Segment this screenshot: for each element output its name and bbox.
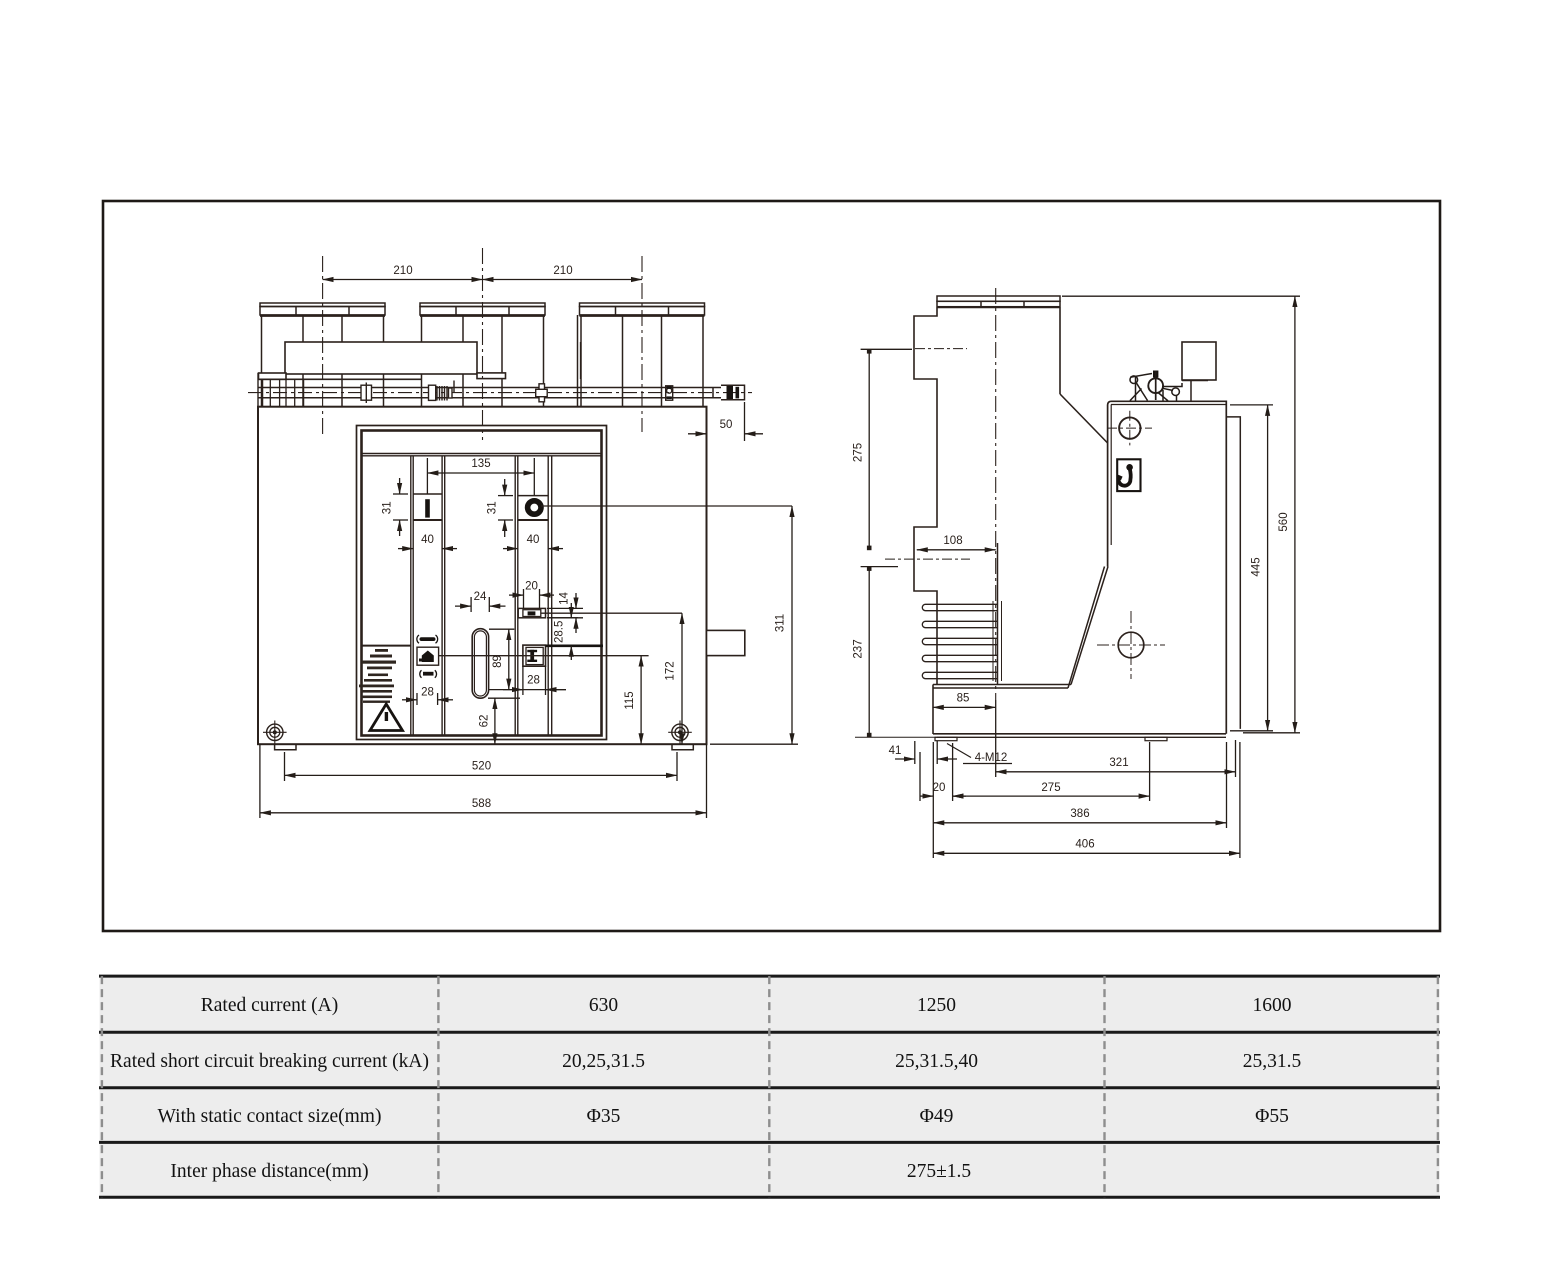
svg-text:31: 31 [487,501,499,514]
svg-text:Rated short circuit breaking c: Rated short circuit breaking current (kA… [110,1051,429,1072]
svg-text:406: 406 [1075,839,1094,851]
svg-text:237: 237 [853,639,865,658]
svg-text:Rated current (A): Rated current (A) [201,995,339,1016]
svg-text:275: 275 [1041,782,1060,794]
svg-text:445: 445 [1251,557,1263,576]
svg-text:20,25,31.5: 20,25,31.5 [562,1051,645,1072]
svg-text:311: 311 [775,614,787,632]
svg-text:25,31.5,40: 25,31.5,40 [895,1051,978,1072]
svg-text:588: 588 [472,798,491,810]
svg-text:28.5: 28.5 [554,621,566,643]
svg-text:85: 85 [957,693,970,705]
svg-text:40: 40 [421,534,434,546]
svg-text:40: 40 [527,534,540,546]
svg-text:28: 28 [421,687,434,699]
svg-text:28: 28 [527,675,540,687]
svg-text:25,31.5: 25,31.5 [1243,1051,1302,1072]
svg-text:135: 135 [471,458,490,470]
svg-text:Φ49: Φ49 [920,1106,954,1127]
svg-text:24: 24 [474,591,487,603]
svg-text:41: 41 [889,745,902,757]
svg-text:321: 321 [1109,757,1128,769]
svg-text:Φ35: Φ35 [587,1106,621,1127]
svg-text:108: 108 [943,535,962,547]
svg-text:With static contact size(mm): With static contact size(mm) [158,1106,382,1127]
svg-text:4-M12: 4-M12 [975,752,1008,764]
svg-text:31: 31 [382,501,394,514]
svg-text:275: 275 [853,443,865,462]
svg-text:115: 115 [624,691,636,709]
svg-text:89: 89 [492,655,504,668]
svg-text:14: 14 [559,592,571,605]
svg-text:520: 520 [472,761,491,773]
svg-text:1250: 1250 [917,995,956,1016]
svg-text:172: 172 [665,661,677,680]
svg-text:275±1.5: 275±1.5 [907,1161,971,1182]
svg-text:20: 20 [933,782,946,794]
svg-text:Φ55: Φ55 [1255,1106,1289,1127]
svg-text:62: 62 [479,715,491,728]
svg-text:Inter phase distance(mm): Inter phase distance(mm) [170,1161,368,1182]
svg-text:20: 20 [525,581,538,593]
svg-text:50: 50 [720,419,733,431]
svg-text:210: 210 [393,265,412,277]
svg-text:630: 630 [589,995,618,1016]
svg-text:1600: 1600 [1253,995,1292,1016]
svg-text:560: 560 [1278,512,1290,531]
svg-text:210: 210 [553,265,572,277]
svg-text:386: 386 [1070,808,1089,820]
